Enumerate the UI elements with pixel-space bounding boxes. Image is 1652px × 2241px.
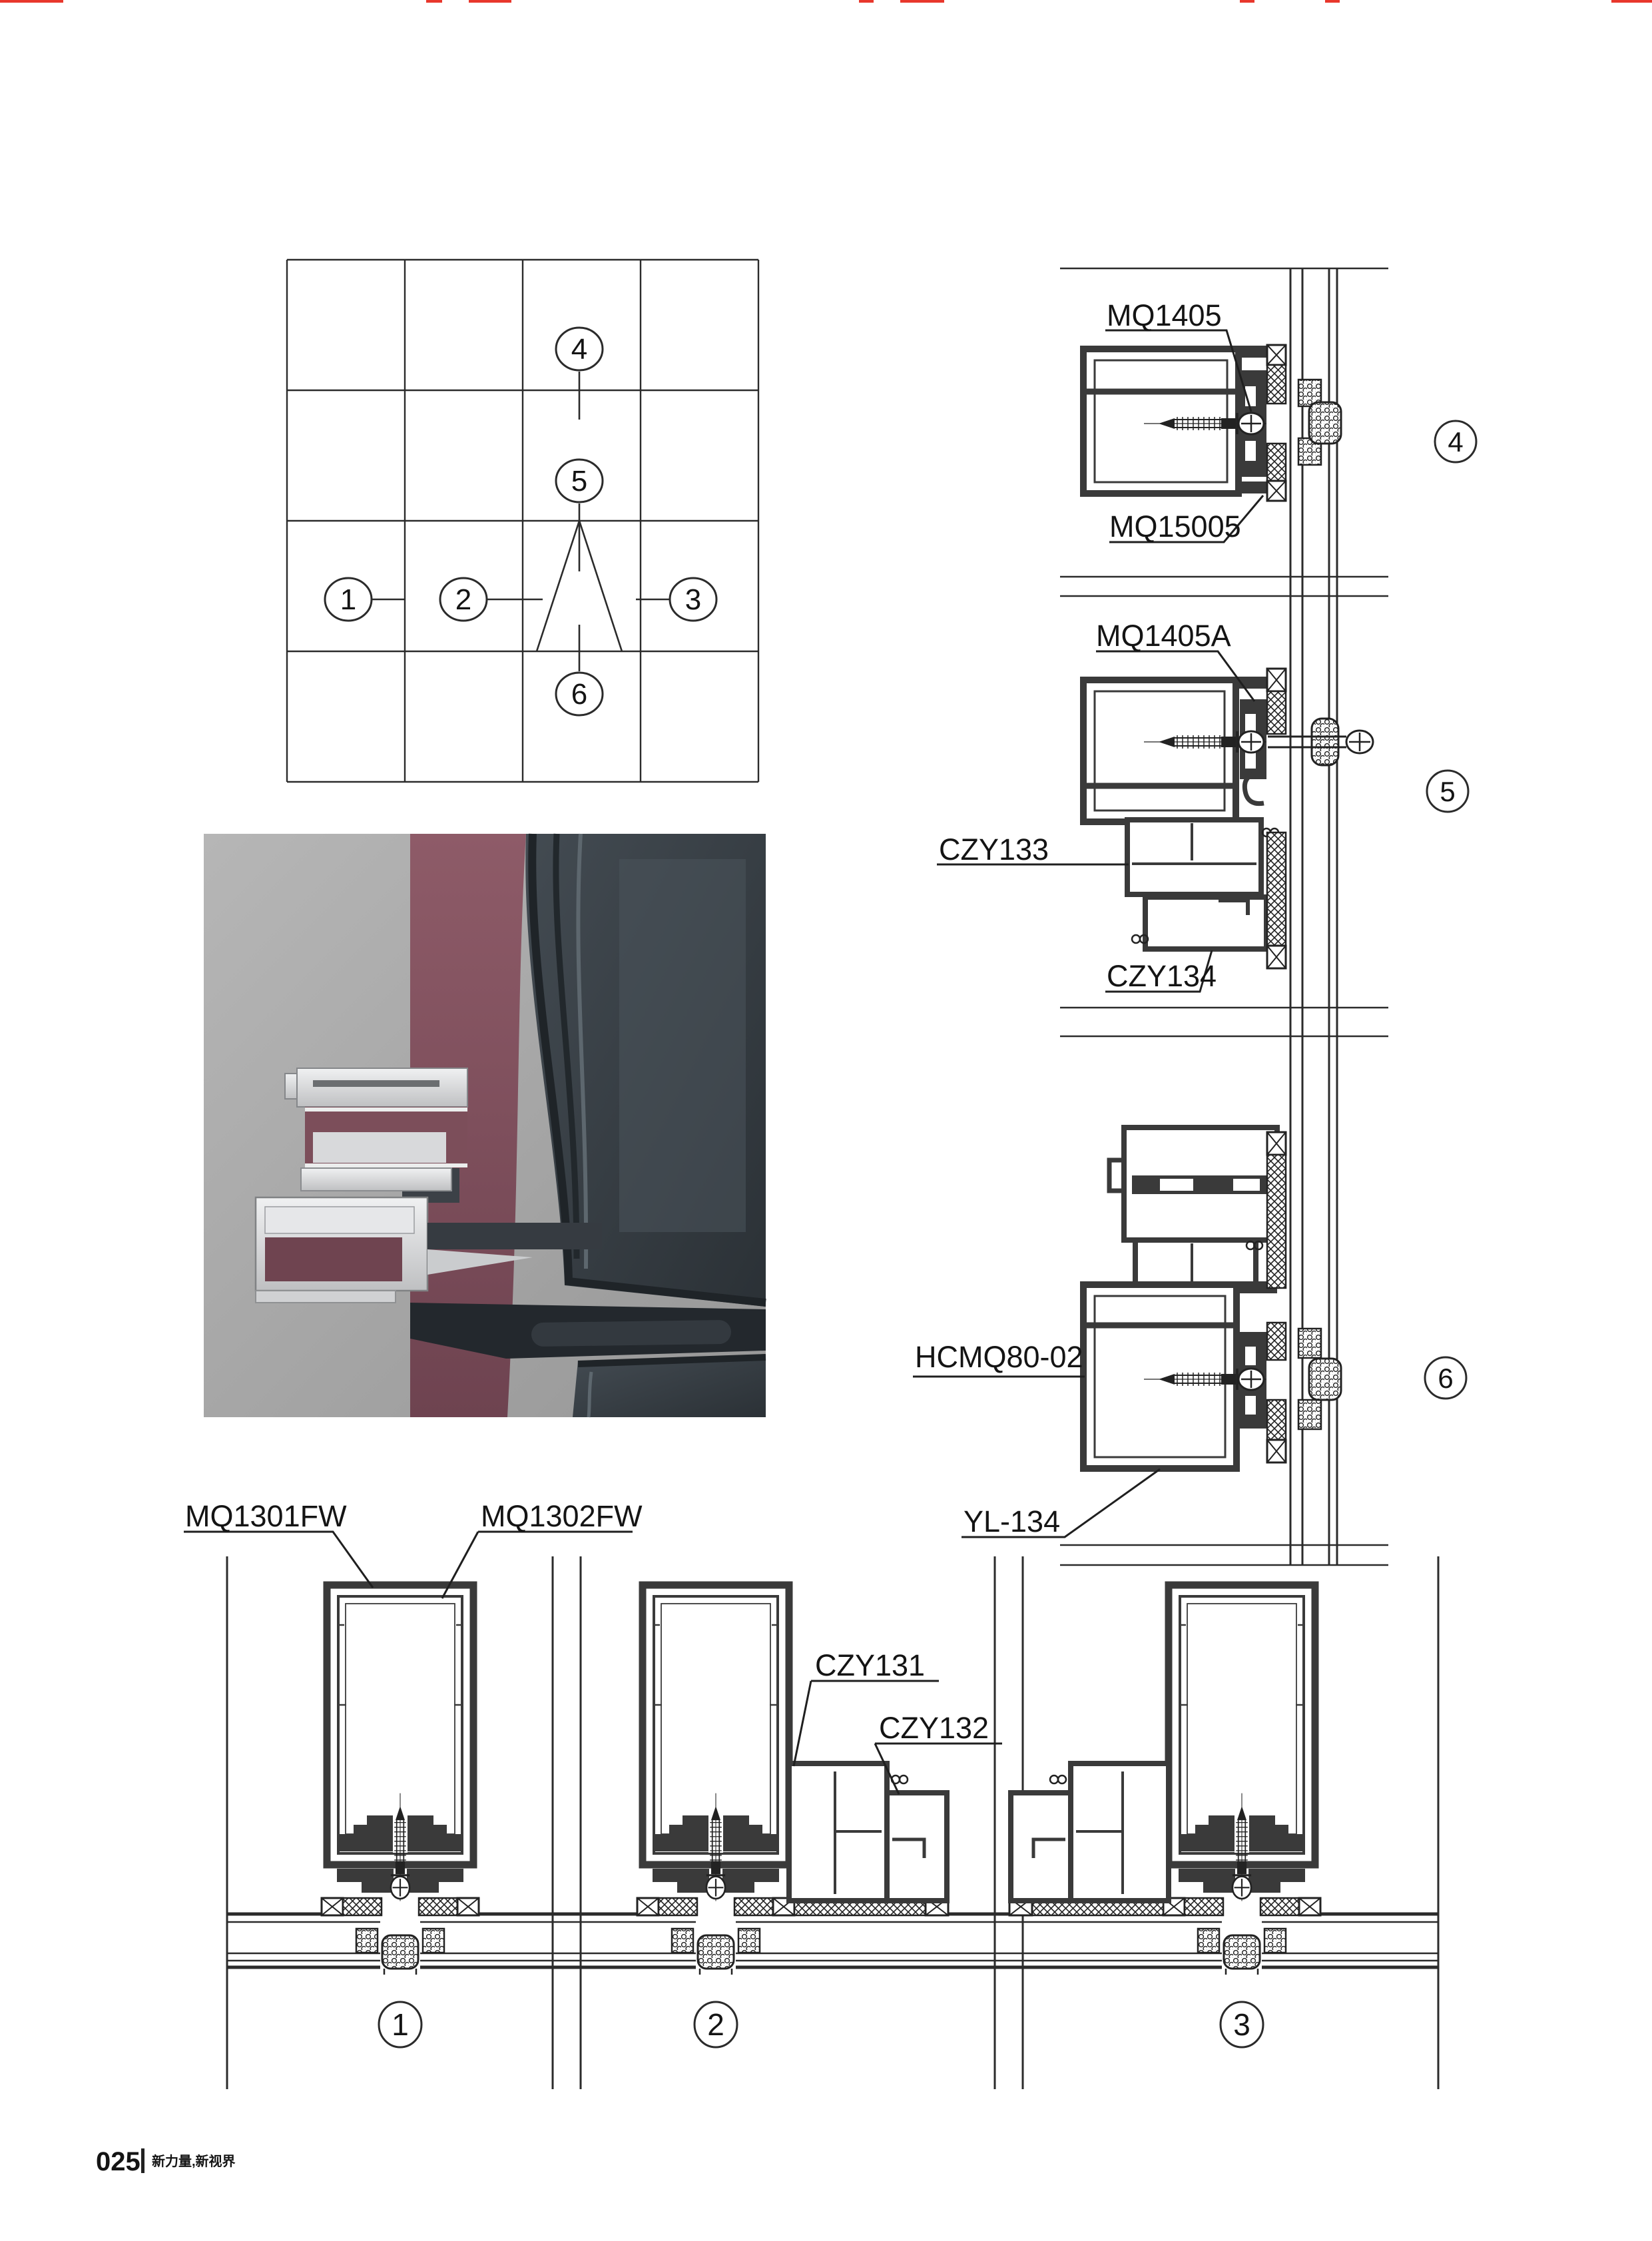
detail-callout-4: 4	[1435, 421, 1476, 462]
keyplan-callout-2: 2	[440, 578, 487, 621]
detail-section-6: HCMQ80-02 YL-134 6	[913, 1127, 1466, 1538]
profile-label: MQ1302FW	[481, 1499, 643, 1533]
detail-section-2: CZY131 CZY132 2	[637, 1585, 1002, 2047]
callout-number: 1	[340, 583, 356, 616]
key-plan: 1 2 3 4 5 6	[287, 260, 758, 782]
profile-label: CZY133	[939, 832, 1049, 866]
render-photo	[204, 834, 766, 1417]
detail-section-5: MQ1405A CZY133 CZY134 5	[937, 619, 1468, 993]
callout-number: 3	[1233, 2007, 1250, 2042]
profile-label: MQ1405A	[1096, 619, 1231, 653]
detail-callout-2: 2	[694, 2002, 737, 2047]
footer-slogan: 新力量,新视界	[152, 2153, 236, 2169]
callout-number: 1	[392, 2007, 409, 2042]
profile-label: CZY131	[815, 1648, 925, 1682]
detail-callout-6: 6	[1425, 1357, 1466, 1399]
print-crop-marks	[0, 0, 1652, 3]
callout-number: 6	[1438, 1363, 1453, 1394]
footer-divider	[141, 2148, 144, 2173]
page-canvas: 1 2 3 4 5 6	[0, 0, 1652, 2241]
detail-callout-5: 5	[1427, 771, 1468, 812]
profile-label: CZY132	[879, 1711, 989, 1745]
detail-section-4: MQ1405 MQ15005 4	[1083, 298, 1476, 543]
callout-number: 5	[1440, 776, 1455, 807]
keyplan-callout-1: 1	[325, 578, 372, 621]
profile-label: MQ1301FW	[185, 1499, 347, 1533]
detail-callout-1: 1	[379, 2002, 421, 2047]
catalog-page: 1 2 3 4 5 6	[0, 0, 1652, 2241]
callout-number: 3	[685, 583, 701, 616]
plan-details-strip: MQ1301FW MQ1302FW 1 CZY131 CZY132	[184, 1499, 1438, 2089]
callout-number: 4	[1448, 426, 1463, 458]
detail-callout-3: 3	[1221, 2002, 1263, 2047]
detail-section-3: 3	[1009, 1585, 1320, 2047]
callout-number: 6	[571, 678, 587, 711]
callout-number: 2	[455, 583, 471, 616]
keyplan-callout-4: 4	[556, 328, 603, 370]
profile-label: HCMQ80-02	[915, 1340, 1083, 1374]
keyplan-callout-6: 6	[556, 673, 603, 715]
callout-number: 5	[571, 465, 587, 497]
profile-label: YL-134	[964, 1504, 1060, 1538]
keyplan-callout-5: 5	[556, 460, 603, 502]
page-footer: 025 新力量,新视界	[96, 2147, 236, 2176]
page-number: 025	[96, 2147, 140, 2176]
detail-section-1: MQ1301FW MQ1302FW 1	[184, 1499, 643, 2047]
profile-label: CZY134	[1107, 959, 1217, 993]
profile-label: MQ15005	[1109, 509, 1241, 543]
profile-label: MQ1405	[1107, 298, 1222, 332]
callout-number: 2	[707, 2007, 724, 2042]
callout-number: 4	[571, 333, 587, 366]
keyplan-callout-3: 3	[670, 578, 716, 621]
